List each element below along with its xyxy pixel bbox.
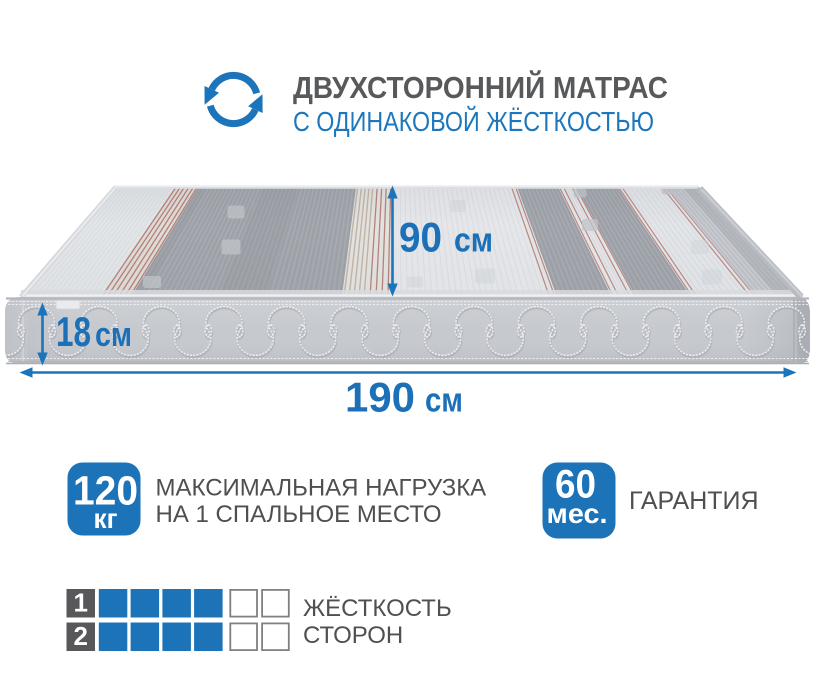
svg-text:ДВУХСТОРОННИЙ МАТРАС: ДВУХСТОРОННИЙ МАТРАС	[293, 69, 668, 105]
svg-text:ГАРАНТИЯ: ГАРАНТИЯ	[629, 487, 759, 515]
svg-text:НА 1 СПАЛЬНОЕ МЕСТО: НА 1 СПАЛЬНОЕ МЕСТО	[156, 501, 442, 528]
svg-text:кг: кг	[94, 503, 118, 534]
svg-text:2: 2	[74, 621, 88, 651]
svg-text:см: см	[454, 222, 493, 260]
svg-text:мес.: мес.	[547, 498, 608, 529]
svg-text:см: см	[425, 382, 463, 420]
svg-text:ЖЁСТКОСТЬ: ЖЁСТКОСТЬ	[303, 595, 452, 622]
svg-text:18: 18	[56, 308, 91, 355]
svg-text:СТОРОН: СТОРОН	[303, 622, 403, 649]
svg-text:1: 1	[74, 588, 88, 618]
svg-text:190: 190	[345, 374, 415, 421]
svg-text:90: 90	[399, 214, 442, 261]
svg-text:МАКСИМАЛЬНАЯ НАГРУЗКА: МАКСИМАЛЬНАЯ НАГРУЗКА	[156, 475, 487, 502]
svg-text:С ОДИНАКОВОЙ ЖЁСТКОСТЬЮ: С ОДИНАКОВОЙ ЖЁСТКОСТЬЮ	[293, 106, 654, 137]
svg-text:см: см	[95, 316, 132, 354]
